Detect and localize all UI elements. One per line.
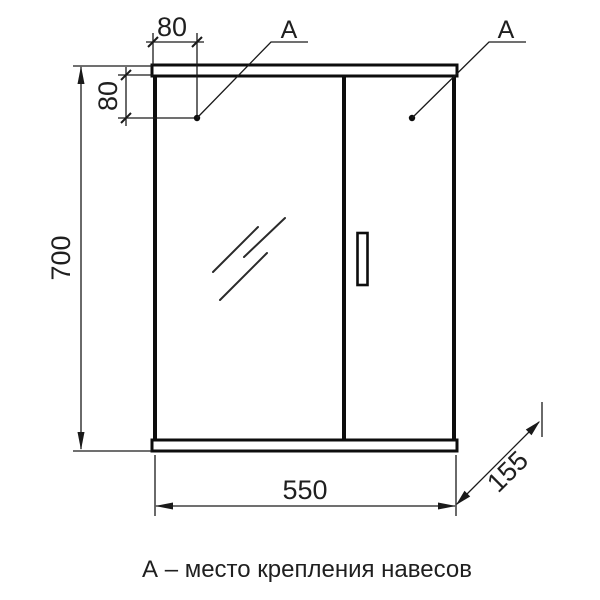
dim-depth-value: 155: [481, 445, 534, 498]
door-handle: [358, 233, 368, 285]
callout-left: [194, 42, 308, 121]
cabinet-drawing: 700 550 155 80: [0, 0, 600, 600]
callout-leader-line: [412, 42, 526, 118]
callout-left-label: А: [281, 16, 298, 44]
arrow-up-icon: [78, 66, 85, 84]
mirror-hatch-icon: [213, 218, 285, 300]
dim-offset-y-value: 80: [93, 81, 123, 111]
mirror-hatch-line: [220, 253, 267, 300]
dim-width-value: 550: [282, 475, 327, 505]
cabinet-top-panel: [152, 65, 457, 76]
technical-drawing-page: 700 550 155 80: [0, 0, 600, 600]
cabinet-body: [152, 65, 457, 451]
callout-right-label: А: [498, 16, 515, 44]
dim-offset-x-value: 80: [157, 12, 187, 42]
callout-right: [409, 42, 526, 121]
arrow-right-icon: [438, 503, 456, 510]
dim-height-value: 700: [46, 235, 76, 280]
arrow-down-icon: [78, 432, 85, 450]
mirror-hatch-line: [244, 218, 285, 257]
dim-height: [73, 66, 152, 451]
arrow-left-icon: [155, 503, 173, 510]
callout-leader-line: [197, 42, 308, 118]
drawing-caption: А – место крепления навесов: [142, 556, 472, 583]
cabinet-bottom-panel: [152, 440, 457, 451]
